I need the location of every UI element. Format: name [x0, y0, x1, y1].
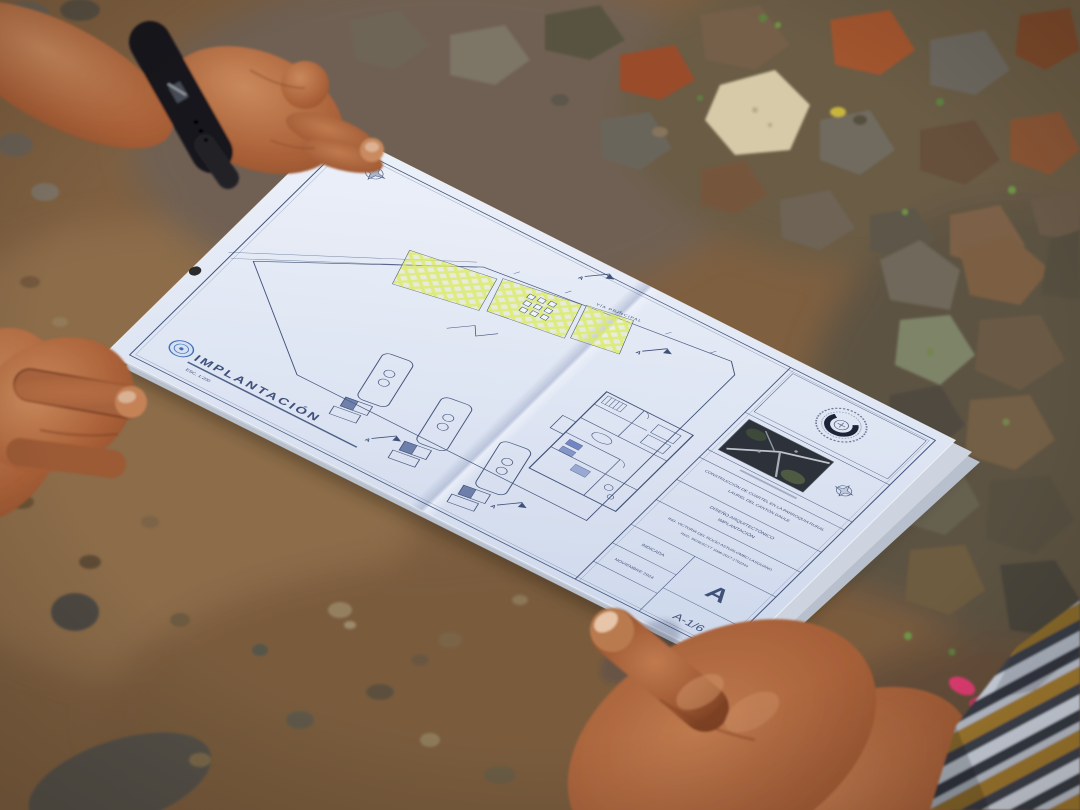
- vignette: [0, 0, 1080, 810]
- photo-scene: VÍA PRINCIPAL: [0, 0, 1080, 810]
- scene-canvas: VÍA PRINCIPAL: [0, 0, 1080, 810]
